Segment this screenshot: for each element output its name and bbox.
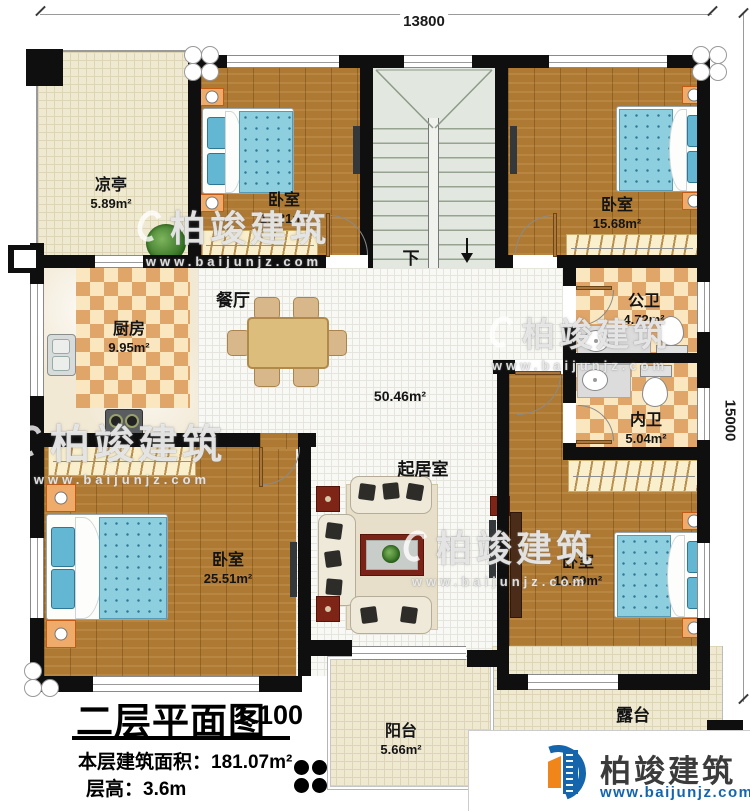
window bbox=[697, 388, 710, 440]
railing-post-icon bbox=[41, 679, 59, 697]
railing-post-icon bbox=[201, 63, 219, 81]
tv-icon bbox=[290, 542, 297, 597]
kitchen-sink-icon bbox=[47, 334, 76, 376]
coffee-table-icon bbox=[360, 534, 424, 576]
wall bbox=[305, 640, 352, 656]
pillar-icon bbox=[312, 778, 327, 793]
room-label-private-bath: 内卫 5.04m² bbox=[625, 411, 666, 447]
pillar-icon bbox=[294, 778, 309, 793]
toilet-icon bbox=[642, 377, 668, 407]
drawing-scale: 1:100 bbox=[234, 700, 303, 731]
sliding-door bbox=[352, 646, 466, 660]
railing-post-icon bbox=[201, 46, 219, 64]
pillar-icon bbox=[294, 760, 309, 775]
wall bbox=[497, 360, 509, 690]
bed-icon bbox=[614, 532, 708, 618]
dining-table-icon bbox=[247, 317, 329, 369]
wardrobe-icon bbox=[568, 460, 700, 492]
wall bbox=[188, 55, 201, 268]
window bbox=[697, 282, 710, 332]
floor-plan: 凉亭 5.89m² 卧室 13.31m² 卧室 15.68m² 厨房 9.95m… bbox=[0, 0, 750, 811]
stair-divider bbox=[428, 118, 439, 268]
nightstand-icon bbox=[46, 484, 76, 512]
railing-post-icon bbox=[184, 46, 202, 64]
room-label-bedroom-top-right: 卧室 15.68m² bbox=[593, 196, 641, 232]
bed-icon bbox=[202, 108, 294, 194]
bed-sheet bbox=[667, 535, 685, 617]
nightstand-icon bbox=[200, 88, 224, 106]
door-opening bbox=[326, 255, 368, 268]
bed-mattress bbox=[617, 535, 671, 617]
floor-height-text: 层高：3.6m bbox=[86, 774, 186, 801]
nightstand-icon bbox=[200, 194, 224, 212]
dimension-tick bbox=[707, 6, 718, 17]
tv-icon bbox=[510, 126, 517, 174]
railing-post-icon bbox=[692, 46, 710, 64]
nightstand-icon bbox=[46, 620, 76, 648]
room-label-public-bath: 公卫 4.72m² bbox=[623, 292, 664, 328]
railing-post-icon bbox=[692, 63, 710, 81]
door-leaf bbox=[553, 213, 557, 257]
bed-mattress bbox=[239, 111, 293, 193]
tv-cabinet-icon bbox=[510, 512, 522, 618]
bed-icon bbox=[616, 106, 708, 192]
tv-icon bbox=[353, 126, 360, 174]
railing-post-icon bbox=[709, 63, 727, 81]
railing-post-icon bbox=[24, 679, 42, 697]
room-label-kitchen: 厨房 9.95m² bbox=[108, 320, 149, 356]
stair-winder-lines bbox=[373, 66, 495, 136]
wardrobe-icon bbox=[48, 446, 196, 476]
wall-corner-inner bbox=[14, 250, 36, 268]
pillow-icon bbox=[207, 153, 227, 185]
pillow-icon bbox=[51, 569, 75, 609]
bed-mattress bbox=[99, 517, 167, 619]
door-opening bbox=[563, 286, 576, 326]
room-label-bedroom-bottom-right: 卧室 19.59m² bbox=[554, 553, 602, 589]
dimension-line-right bbox=[743, 14, 744, 702]
room-label-living: 起居室 bbox=[398, 459, 449, 480]
window bbox=[227, 55, 339, 68]
railing-post-icon bbox=[709, 46, 727, 64]
window bbox=[697, 543, 710, 618]
stair-arrow bbox=[466, 238, 468, 254]
sink-icon bbox=[583, 330, 609, 352]
sofa-icon bbox=[350, 476, 432, 514]
sink-icon bbox=[582, 369, 608, 391]
bed-mattress bbox=[619, 109, 673, 191]
gazebo-door bbox=[95, 255, 143, 268]
toilet-tank bbox=[640, 365, 672, 377]
pillow-icon bbox=[51, 527, 75, 567]
pillar-icon bbox=[312, 760, 327, 775]
dimension-line-top bbox=[40, 14, 712, 15]
window bbox=[30, 284, 44, 396]
tv-icon bbox=[489, 520, 496, 578]
wall bbox=[495, 55, 508, 268]
wall bbox=[30, 433, 260, 447]
bed-sheet bbox=[669, 109, 687, 191]
side-table-icon bbox=[316, 486, 340, 512]
pillow-icon bbox=[207, 117, 227, 149]
wall bbox=[467, 650, 509, 667]
door-opening bbox=[513, 255, 557, 268]
living-area-label: 50.46m² bbox=[374, 388, 426, 406]
sofa-icon bbox=[318, 514, 356, 606]
room-label-dining: 餐厅 bbox=[216, 290, 250, 311]
logo-icon bbox=[528, 742, 590, 804]
railing-post-icon bbox=[24, 662, 42, 680]
window bbox=[404, 55, 472, 68]
terrace-door bbox=[528, 674, 618, 690]
dimension-right-value: 15000 bbox=[722, 388, 739, 454]
wall bbox=[563, 447, 710, 460]
side-table-icon bbox=[316, 596, 340, 622]
room-label-bedroom-bottom-left: 卧室 25.51m² bbox=[204, 551, 252, 587]
window bbox=[93, 676, 259, 692]
stairs-down-label: 下 bbox=[403, 248, 420, 269]
dimension-top-value: 13800 bbox=[400, 13, 448, 30]
window bbox=[30, 538, 44, 618]
door-opening bbox=[563, 403, 576, 443]
window bbox=[549, 55, 667, 68]
column bbox=[26, 49, 63, 86]
room-label-terrace: 露台 bbox=[616, 705, 650, 726]
plant-icon bbox=[382, 545, 400, 563]
railing-post-icon bbox=[184, 63, 202, 81]
floor-area-text: 本层建筑面积：181.07m² bbox=[78, 747, 292, 774]
bed-icon bbox=[46, 514, 168, 620]
room-label-gazebo: 凉亭 5.89m² bbox=[90, 176, 131, 212]
logo-website-text: www.baijunjz.com bbox=[600, 784, 750, 801]
wall bbox=[576, 353, 697, 363]
room-label-bedroom-top-left: 卧室 13.31m² bbox=[260, 191, 308, 227]
sofa-icon bbox=[350, 596, 432, 634]
stair-arrow-head-icon bbox=[461, 253, 473, 263]
title-underline bbox=[72, 736, 290, 740]
room-label-balcony: 阳台 5.66m² bbox=[380, 722, 421, 758]
